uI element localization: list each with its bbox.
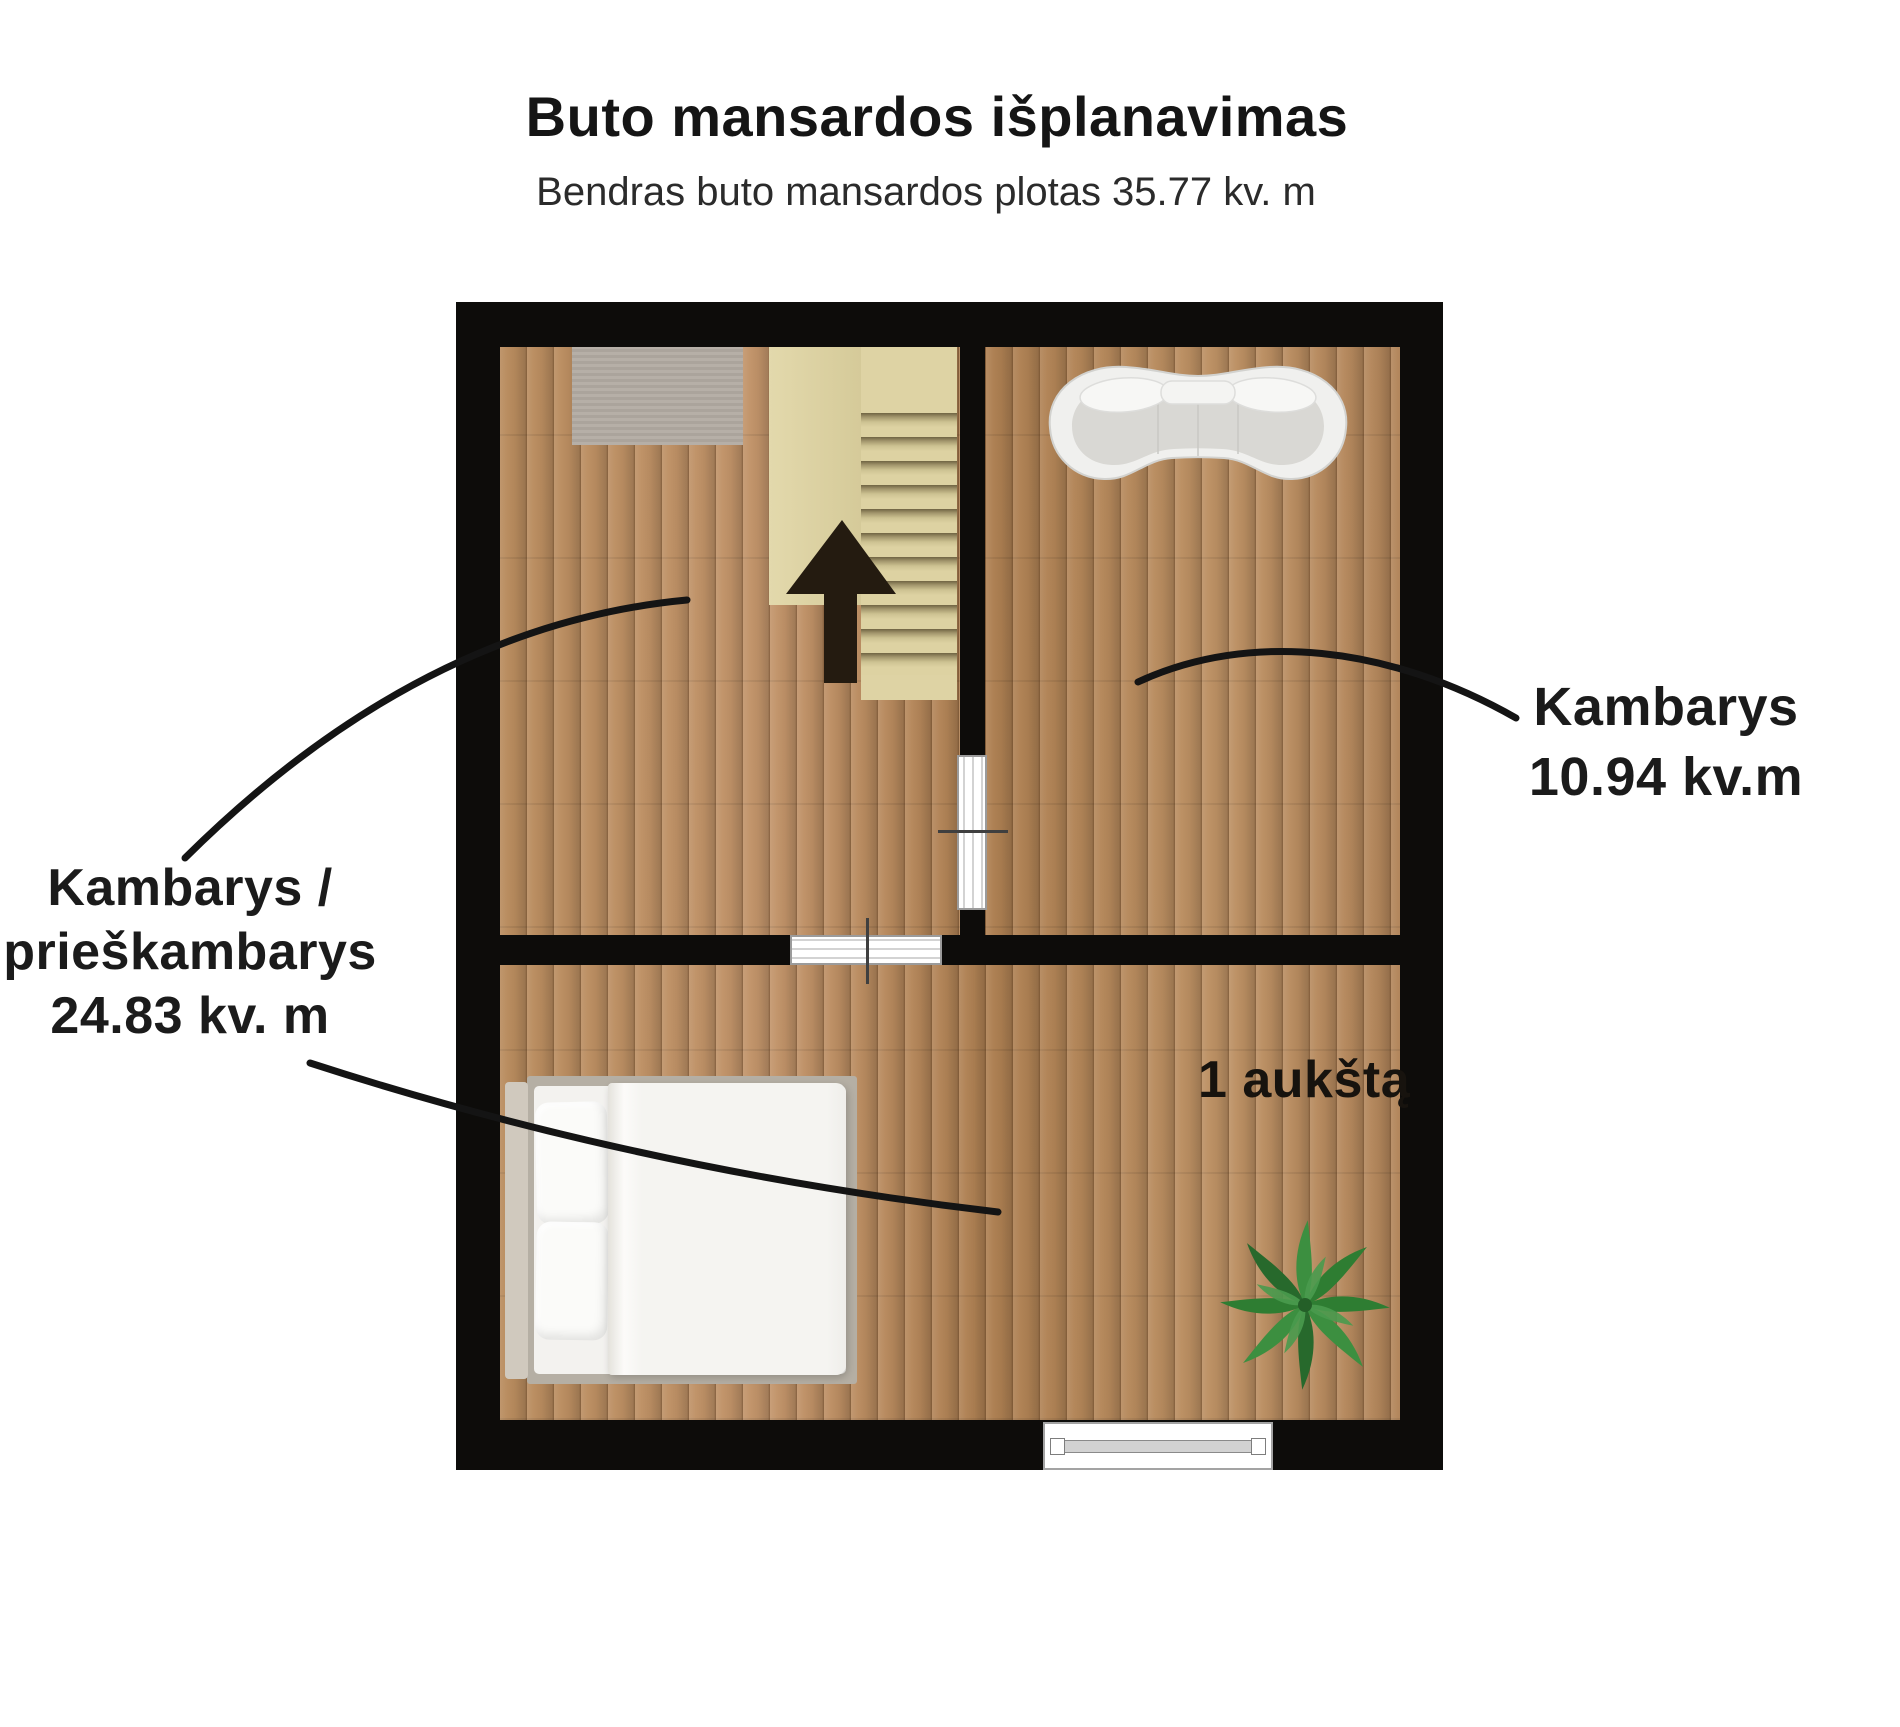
pillow-icon [535, 1221, 609, 1340]
label-left-room-area: 24.83 kv. m [0, 984, 390, 1048]
page-subtitle: Bendras buto mansardos plotas 35.77 kv. … [536, 170, 1316, 215]
sofa-icon [1038, 354, 1358, 494]
page-title: Buto mansardos išplanavimas [526, 84, 1349, 149]
label-right-room-area: 10.94 kv.m [1486, 742, 1846, 812]
window-jamb-left [1050, 1438, 1065, 1455]
pillow-icon [535, 1101, 610, 1224]
bed-headboard [505, 1082, 528, 1379]
floor-plan: 1 aukštą [456, 302, 1443, 1470]
label-right-room: Kambarys 10.94 kv.m [1486, 672, 1846, 812]
door-horizontal-centerline [866, 918, 869, 984]
wall-horizontal-left [500, 935, 790, 965]
plant-icon [1210, 1210, 1400, 1400]
stairs-up-arrow-icon [786, 520, 896, 683]
bed-blanket [608, 1083, 846, 1375]
label-left-room-line1: Kambarys / [0, 856, 390, 920]
wall-vertical-upper [960, 347, 985, 755]
window-icon [1043, 1422, 1273, 1470]
label-left-room: Kambarys / prieškambarys 24.83 kv. m [0, 856, 390, 1048]
stairs-label: 1 aukštą [1198, 1050, 1410, 1110]
door-vertical-centerline [938, 830, 1008, 833]
label-right-room-line1: Kambarys [1486, 672, 1846, 742]
window-jamb-right [1251, 1438, 1266, 1455]
wall-horizontal-right [942, 935, 1400, 965]
label-left-room-line2: prieškambarys [0, 920, 390, 984]
window-glass [1056, 1440, 1260, 1453]
rug [572, 347, 743, 445]
